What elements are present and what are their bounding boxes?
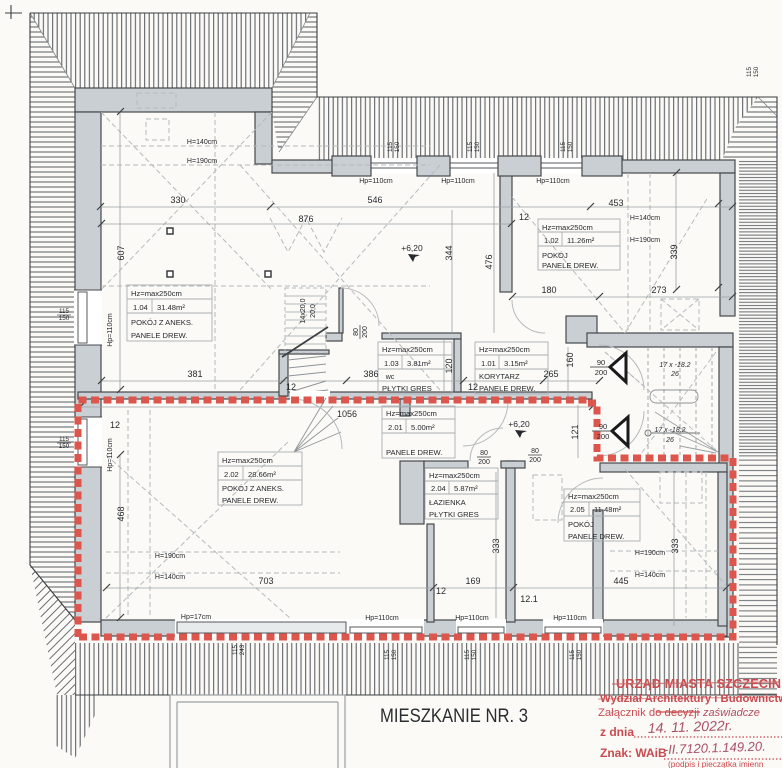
svg-text:2.02: 2.02 <box>224 470 239 479</box>
svg-text:2.01: 2.01 <box>388 423 403 432</box>
svg-text:333: 333 <box>491 538 501 553</box>
svg-text:150: 150 <box>471 649 478 660</box>
svg-text:Hz=max250cm: Hz=max250cm <box>222 456 273 465</box>
svg-text:607: 607 <box>116 245 126 260</box>
svg-text:Hz=max250cm: Hz=max250cm <box>382 345 433 354</box>
svg-text:546: 546 <box>367 195 382 205</box>
svg-text:445: 445 <box>613 576 628 586</box>
svg-text:330: 330 <box>170 195 185 205</box>
svg-text:1.01: 1.01 <box>481 359 496 368</box>
svg-text:12: 12 <box>468 382 478 392</box>
svg-text:150: 150 <box>567 141 574 152</box>
svg-text:wc: wc <box>385 374 395 381</box>
svg-text:Znak: WAiB: Znak: WAiB <box>600 746 667 760</box>
svg-text:ŁAZIENKA: ŁAZIENKA <box>429 498 467 507</box>
svg-text:476: 476 <box>484 254 494 269</box>
svg-text:H=190cm: H=190cm <box>635 550 665 557</box>
svg-text:H=190cm: H=190cm <box>187 158 217 165</box>
svg-text:121: 121 <box>570 424 580 439</box>
svg-text:Hz=max250cm: Hz=max250cm <box>479 345 530 354</box>
svg-text:160: 160 <box>565 352 575 367</box>
svg-text:H=140cm: H=140cm <box>155 574 185 581</box>
svg-text:3.81m²: 3.81m² <box>407 359 431 368</box>
svg-text:Hp=110cm: Hp=110cm <box>536 178 570 185</box>
svg-text:150: 150 <box>576 649 583 660</box>
svg-text:MIESZKANIE NR. 3: MIESZKANIE NR. 3 <box>380 705 528 727</box>
svg-text:381: 381 <box>187 369 202 379</box>
svg-text:14. 11. 2022r.: 14. 11. 2022r. <box>648 717 733 736</box>
svg-text:12: 12 <box>286 382 296 392</box>
svg-text:150: 150 <box>753 66 760 77</box>
svg-text:Hz=max250cm: Hz=max250cm <box>429 471 480 480</box>
svg-text:90: 90 <box>597 358 605 367</box>
svg-text:+6,20: +6,20 <box>508 419 530 429</box>
svg-text:H=190cm: H=190cm <box>630 237 660 244</box>
svg-text:PANELE DREW.: PANELE DREW. <box>568 532 624 541</box>
svg-text:12: 12 <box>110 420 120 430</box>
svg-text:115: 115 <box>467 141 474 152</box>
svg-text:H=140cm: H=140cm <box>635 572 665 579</box>
svg-text:200: 200 <box>478 459 490 466</box>
svg-text:115: 115 <box>384 649 391 660</box>
svg-text:200: 200 <box>595 368 608 377</box>
svg-text:28.66m²: 28.66m² <box>248 470 276 479</box>
svg-text:PŁYTKI GRES: PŁYTKI GRES <box>429 510 479 519</box>
svg-text:KORYTARZ: KORYTARZ <box>479 372 520 381</box>
svg-text:115: 115 <box>560 141 567 152</box>
svg-text:Hp=110cm: Hp=110cm <box>455 615 489 622</box>
svg-text:PANELE DREW.: PANELE DREW. <box>131 331 187 340</box>
svg-text:115: 115 <box>569 649 576 660</box>
svg-text:PANELE DREW.: PANELE DREW. <box>479 384 535 393</box>
svg-text:PANELE DREW.: PANELE DREW. <box>542 261 598 270</box>
svg-text:POKÓJ Z ANEKS.: POKÓJ Z ANEKS. <box>131 318 193 327</box>
svg-text:11.26m²: 11.26m² <box>567 236 595 245</box>
svg-text:5.00m²: 5.00m² <box>411 423 435 432</box>
svg-text:11.48m²: 11.48m² <box>594 505 622 514</box>
svg-text:Hz=max250cm: Hz=max250cm <box>542 223 593 232</box>
svg-text:Wydział Architektury i Budowni: Wydział Architektury i Budownictwa <box>600 693 782 705</box>
svg-text:12: 12 <box>519 212 529 222</box>
svg-text:Załącznik do decyzji: Załącznik do decyzji <box>598 707 699 719</box>
svg-text:1.02: 1.02 <box>544 236 559 245</box>
svg-text:1.03: 1.03 <box>384 359 399 368</box>
svg-text:243: 243 <box>239 644 246 655</box>
svg-text:180: 180 <box>541 285 556 295</box>
svg-text:PŁYTKI GRES: PŁYTKI GRES <box>382 384 432 393</box>
svg-text:150: 150 <box>59 315 70 322</box>
svg-text:150: 150 <box>474 141 481 152</box>
svg-text:115: 115 <box>746 66 753 77</box>
svg-text:120: 120 <box>444 358 454 373</box>
svg-text:468: 468 <box>116 506 126 521</box>
svg-text:273: 273 <box>651 285 666 295</box>
svg-text:(podpis i pieczątka imienn: (podpis i pieczątka imienn <box>668 759 764 768</box>
svg-text:Hp=110cm: Hp=110cm <box>553 615 587 622</box>
svg-text:344: 344 <box>444 245 454 260</box>
svg-text:386: 386 <box>363 369 378 379</box>
svg-text:80: 80 <box>480 450 488 457</box>
svg-text:2.05: 2.05 <box>570 505 585 514</box>
svg-text:80: 80 <box>353 328 360 336</box>
svg-text:5.87m²: 5.87m² <box>454 484 478 493</box>
svg-text:12: 12 <box>436 586 446 596</box>
svg-text:26: 26 <box>670 371 679 378</box>
svg-text:339: 339 <box>669 244 679 259</box>
svg-text:1056: 1056 <box>337 409 357 419</box>
svg-text:333: 333 <box>670 538 680 553</box>
svg-text:2.04: 2.04 <box>431 484 446 493</box>
svg-text:3.15m²: 3.15m² <box>504 359 528 368</box>
svg-text:PANELE DREW.: PANELE DREW. <box>386 448 442 457</box>
svg-text:Hz=max250cm: Hz=max250cm <box>568 492 619 501</box>
svg-text:POKÓJ: POKÓJ <box>542 251 568 260</box>
svg-text:14x20,0: 14x20,0 <box>300 298 307 323</box>
svg-text:876: 876 <box>298 214 313 224</box>
svg-text:453: 453 <box>608 198 623 208</box>
svg-text:200: 200 <box>597 432 610 441</box>
svg-text:Hp=110cm: Hp=110cm <box>441 178 475 185</box>
svg-text:31.48m²: 31.48m² <box>157 303 185 312</box>
svg-text:150: 150 <box>59 443 70 450</box>
svg-text:80: 80 <box>531 448 539 455</box>
svg-text:POKÓJ Z ANEKS.: POKÓJ Z ANEKS. <box>222 484 284 493</box>
svg-text:26: 26 <box>665 437 674 444</box>
svg-text:H=140cm: H=140cm <box>630 215 660 222</box>
svg-text:150: 150 <box>394 141 401 152</box>
svg-text:200: 200 <box>529 457 541 464</box>
svg-text:115: 115 <box>387 141 394 152</box>
svg-text:703: 703 <box>258 576 273 586</box>
svg-text:POKÓJ: POKÓJ <box>568 520 594 529</box>
svg-text:169: 169 <box>465 576 480 586</box>
svg-text:PANELE DREW.: PANELE DREW. <box>222 496 278 505</box>
svg-text:150: 150 <box>391 649 398 660</box>
svg-text:265: 265 <box>543 369 558 379</box>
svg-text:Hp=110cm: Hp=110cm <box>107 438 114 472</box>
svg-text:Hp=110cm: Hp=110cm <box>107 313 114 347</box>
svg-text:Hp=110cm: Hp=110cm <box>359 178 393 185</box>
svg-text:17 x -18.2: 17 x -18.2 <box>659 362 690 369</box>
svg-text:115: 115 <box>59 308 70 315</box>
svg-text:12.1: 12.1 <box>520 594 538 604</box>
svg-text:115: 115 <box>59 436 70 443</box>
svg-text:200: 200 <box>362 326 369 338</box>
svg-text:+6,20: +6,20 <box>401 243 423 253</box>
svg-text:115: 115 <box>464 649 471 660</box>
svg-text:17 x -18.2: 17 x -18.2 <box>654 427 685 434</box>
svg-text:z dnia: z dnia <box>600 725 634 739</box>
svg-text:90: 90 <box>599 422 607 431</box>
svg-text:115: 115 <box>232 644 239 655</box>
svg-text:1.04: 1.04 <box>133 303 148 312</box>
svg-text:H=190cm: H=190cm <box>155 553 185 560</box>
svg-text:20,0: 20,0 <box>310 304 317 318</box>
svg-text:Hp=110cm: Hp=110cm <box>365 615 399 622</box>
svg-text:Hp=17cm: Hp=17cm <box>181 614 211 621</box>
svg-text:Hz=max250cm: Hz=max250cm <box>386 409 437 418</box>
svg-text:H=140cm: H=140cm <box>187 139 217 146</box>
svg-text:Hz=max250cm: Hz=max250cm <box>131 289 182 298</box>
